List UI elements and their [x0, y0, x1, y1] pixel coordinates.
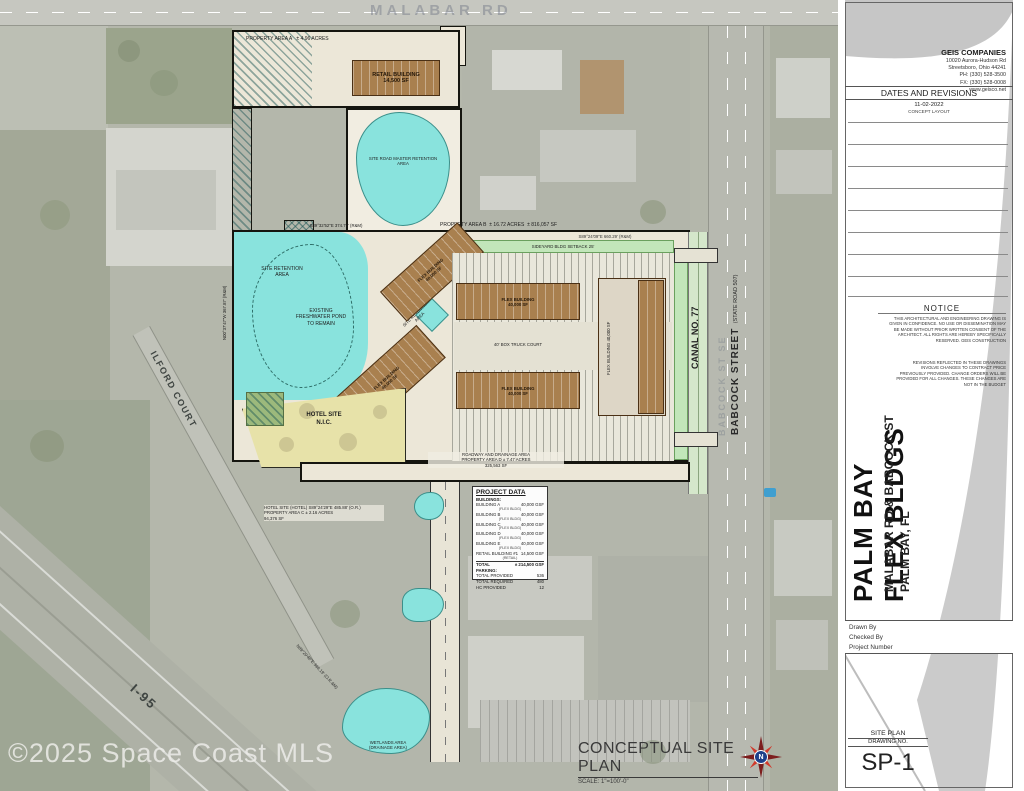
roadway-line3: 325,563 SF	[485, 463, 507, 468]
notice-paragraph-1: THIS ARCHITECTURAL AND ENGINEERING DRAWI…	[886, 316, 1006, 343]
aerial-roof	[776, 58, 830, 118]
aerial-roof	[598, 556, 714, 702]
flex-building-a	[638, 280, 664, 414]
flex-a-label: FLEX BUILDING 40,000 SF	[606, 300, 611, 396]
hotel-tree	[279, 437, 294, 452]
south-site-road	[430, 482, 460, 762]
drawn-by-label: Drawn By	[849, 623, 1009, 633]
revision-ruleline	[848, 296, 1008, 297]
company-addr2: Streetsboro, Ohio 44241	[868, 65, 1006, 72]
hotel-tree	[339, 433, 357, 451]
truck-court-label: 40' BOX TRUCK COURT	[470, 342, 566, 347]
tree	[330, 600, 360, 628]
bearing-label: S89°24'29"E 485.88' (O.R.)	[309, 505, 361, 510]
property-b-name: PROPERTY AREA B	[440, 222, 487, 228]
sheet-title-block: SITE PLAN DRAWING NO. SP-1	[848, 730, 928, 777]
revision-date: 11-02-2022	[845, 102, 1013, 108]
project-data-title: PROJECT DATA	[476, 489, 544, 496]
malabar-rd-watermark: MALABAR RD	[370, 2, 512, 21]
bearing-label: S89°32'52"E 374.79' (R&M)	[276, 223, 396, 228]
ilford-court-label: ILFORD COURT	[147, 349, 199, 430]
watermark: ©2025 Space Coast MLS	[8, 738, 334, 769]
hotel-site-line2: N.I.C.	[316, 420, 331, 426]
wetlands-line2: (DRAINAGE AREA)	[369, 745, 407, 750]
flex-d-sf: 40,000 SF	[508, 302, 528, 307]
checked-by-label: Checked By	[849, 633, 1009, 643]
tree	[118, 40, 140, 62]
table-total-row: TOTAL± 214,500 GSF	[476, 561, 544, 568]
flex-building-e: FLEX BUILDING 40,000 SF	[456, 372, 580, 409]
flex-building-d: FLEX BUILDING 40,000 SF	[456, 283, 580, 320]
revision-ruleline	[848, 276, 1008, 277]
project-city-vertical: PALM BAY, FL	[898, 402, 912, 592]
aerial-roof	[480, 176, 536, 210]
hotel-property-c-label: HOTEL SITE (HOTEL) S89°24'29"E 485.88' (…	[264, 505, 384, 521]
property-b-label: PROPERTY AREA B ± 16.72 ACRES ± 816,057 …	[440, 222, 660, 228]
aerial-roof	[774, 520, 832, 596]
revision-ruleline	[848, 166, 1008, 167]
hotel-c-line1: HOTEL SITE (HOTEL)	[264, 505, 307, 510]
roadway-line1: ROADWAY AND DRAINAGE AREA	[462, 452, 530, 457]
driveway-crossing-south	[674, 432, 718, 447]
revision-ruleline	[848, 232, 1008, 233]
canal-label: CANAL NO. 77	[690, 278, 701, 398]
notice-paragraph-2: REVISIONS REFLECTED IN THESE DRAWINGS IN…	[896, 360, 1006, 387]
road-malabar: MALABAR RD	[0, 0, 838, 26]
roadway-d-label: ROADWAY AND DRAINAGE AREA PROPERTY AREA …	[428, 452, 564, 468]
aerial-roof	[580, 60, 624, 114]
property-a-size: ± 4.96 ACRES	[296, 36, 328, 42]
aerial-roof	[492, 50, 562, 90]
flex-a-name: FLEX BUILDING	[606, 342, 611, 374]
revision-ruleline	[848, 188, 1008, 189]
project-data-box: PROJECT DATA BUILDINGS: BUILDING A40,000…	[472, 486, 548, 580]
sheet-title: SITE PLAN	[848, 730, 928, 739]
scale-label: SCALE: 1"=100'-0"	[578, 779, 758, 785]
aerial-patch	[0, 130, 110, 420]
sideyard-setback-label: SIDEYARD BLDG SETBACK 25'	[453, 244, 673, 249]
drawing-no-label: DRAWING NO.	[848, 739, 928, 747]
babcock-street-sub: (STATE ROAD 507)	[733, 275, 739, 324]
property-b-size: ± 16.72 ACRES	[489, 222, 524, 228]
roadway-line2: PROPERTY AREA D ± 7.47 ACRES	[461, 457, 530, 462]
revision-ruleline	[848, 144, 1008, 145]
wetlands-label: WETLANDS AREA (DRAINAGE AREA)	[356, 740, 420, 751]
revision-ruleline	[848, 254, 1008, 255]
table-row: HC PROVIDED12	[476, 585, 544, 591]
project-number-label: Project Number	[849, 643, 1009, 653]
bearing-label: S89°24'09"E 660.29' (R&M)	[540, 234, 670, 239]
aerial-patch	[0, 26, 108, 136]
freshwater-pond-label: EXISTING FRESHWATER POND TO REMAIN	[292, 308, 350, 327]
property-a-label: PROPERTY AREA A ± 4.96 ACRES	[246, 36, 416, 42]
hotel-open-space	[246, 392, 284, 426]
property-a-name: PROPERTY AREA A	[246, 36, 292, 42]
divider	[845, 99, 1013, 100]
revision-ruleline	[848, 122, 1008, 123]
divider	[845, 86, 1013, 87]
drawing-number: SP-1	[848, 749, 928, 777]
revision-ruleline	[848, 210, 1008, 211]
plan-footer: CONCEPTUAL SITE PLAN SCALE: 1"=100'-0"	[578, 740, 758, 785]
tree	[640, 200, 666, 224]
aerial-roof	[776, 150, 832, 194]
row-strip-hatch	[232, 108, 252, 232]
company-phone: PH: (330) 528-3500	[868, 72, 1006, 79]
hotel-tree	[373, 405, 387, 419]
tree	[30, 430, 64, 462]
babcock-street-name: BABCOCK STREET	[730, 328, 741, 435]
aerial-roof	[540, 130, 636, 182]
babcock-street-label: BABCOCK STREET (STATE ROAD 507)	[726, 270, 746, 440]
titleblock: GEIS COMPANIES 10020 Aurora-Hudson Rd St…	[838, 0, 1024, 791]
property-b-sf: ± 816,057 SF	[527, 222, 557, 228]
project-address-vertical: MALABAR RD & BABCOCK ST	[882, 402, 896, 592]
east-landscape-strip	[674, 253, 688, 460]
company-addr1: 10020 Aurora-Hudson Rd	[868, 58, 1006, 65]
company-name: GEIS COMPANIES	[868, 48, 1006, 58]
sideyard-setback-strip: SIDEYARD BLDG SETBACK 25'	[452, 240, 674, 253]
aerial-roof	[776, 620, 828, 670]
centerline	[445, 482, 446, 762]
aerial-pool	[764, 488, 776, 497]
dates-revisions-header: DATES AND REVISIONS	[845, 88, 1013, 98]
small-pond	[414, 492, 444, 520]
conceptual-site-plan-title: CONCEPTUAL SITE PLAN	[578, 740, 758, 778]
flex-e-sf: 40,000 SF	[508, 391, 528, 396]
compass-n-label: N	[758, 754, 763, 761]
retail-building: RETAIL BUILDING 14,500 SF	[352, 60, 440, 96]
hotel-site-label: HOTEL SITE N.I.C.	[292, 412, 356, 427]
compass-center: N	[754, 750, 768, 764]
tree	[150, 70, 178, 96]
revision-desc: CONCEPT LAYOUT	[845, 109, 1013, 114]
drawn-by-box: Drawn By Checked By Project Number	[845, 620, 1013, 654]
aerial-patch	[116, 170, 216, 230]
hotel-c-line2: PROPERTY AREA C ± 2.16 ACRES	[264, 510, 333, 515]
hotel-c-line3: 94,376 SF	[264, 516, 284, 521]
retail-building-sf: 14,500 SF	[383, 78, 408, 84]
bearing-label: N00°37'47"W 367.87' (R&M)	[222, 258, 227, 368]
notice-header: NOTICE	[878, 304, 1006, 314]
tree	[40, 200, 70, 230]
aerial-patch	[770, 0, 838, 791]
flex-a-sf: 40,000 SF	[606, 321, 611, 341]
driveway-crossing-north	[674, 248, 718, 263]
wetlands-line1: WETLANDS AREA	[370, 740, 407, 745]
hotel-site-line1: HOTEL SITE	[306, 412, 341, 418]
site-retention-label: SITE RETENTION AREA	[256, 266, 308, 279]
parcel-a-hatch	[234, 32, 312, 106]
compass-rose: N	[740, 736, 782, 778]
master-retention-label: SITE ROAD MASTER RETENTION AREA	[366, 156, 440, 167]
